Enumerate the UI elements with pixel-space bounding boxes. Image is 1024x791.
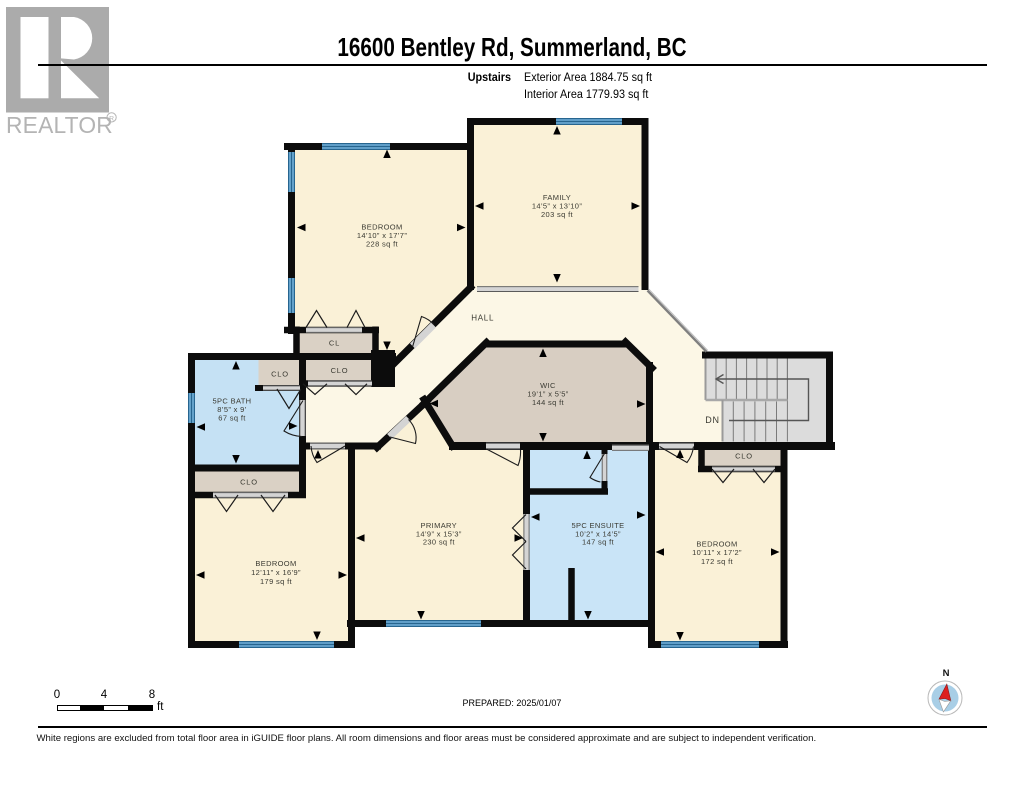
svg-text:BEDROOM: BEDROOM (255, 559, 296, 568)
svg-text:203 sq ft: 203 sq ft (541, 210, 573, 219)
svg-text:12’11” x 16’9”: 12’11” x 16’9” (251, 568, 301, 577)
svg-text:CLO: CLO (271, 370, 289, 379)
svg-text:HALL: HALL (471, 314, 494, 323)
svg-text:228 sq ft: 228 sq ft (366, 240, 398, 249)
svg-text:179 sq ft: 179 sq ft (260, 577, 292, 586)
svg-text:BEDROOM: BEDROOM (696, 539, 737, 548)
svg-text:CLO: CLO (240, 478, 258, 487)
svg-text:CLO: CLO (735, 452, 753, 461)
svg-text:10’11” x 17’2”: 10’11” x 17’2” (692, 548, 742, 557)
svg-text:N: N (943, 668, 950, 679)
svg-text:172 sq ft: 172 sq ft (701, 557, 733, 566)
svg-text:CL: CL (329, 338, 340, 347)
svg-text:DN: DN (705, 415, 720, 425)
svg-text:67 sq ft: 67 sq ft (218, 413, 246, 422)
svg-text:147 sq ft: 147 sq ft (582, 538, 614, 547)
svg-text:230 sq ft: 230 sq ft (423, 538, 455, 547)
svg-text:CLO: CLO (331, 366, 349, 375)
svg-text:144 sq ft: 144 sq ft (532, 398, 564, 407)
